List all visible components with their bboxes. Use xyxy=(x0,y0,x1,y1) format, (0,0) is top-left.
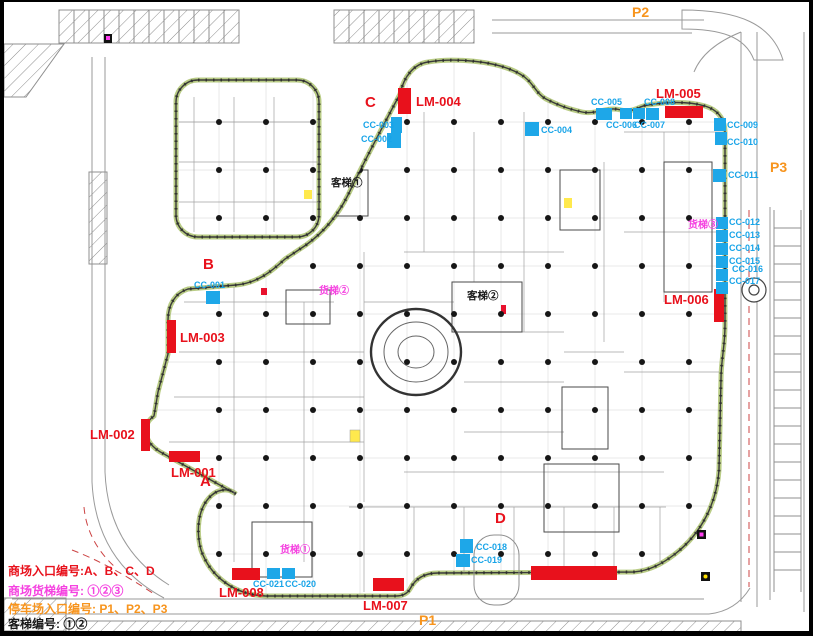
escalator-marker xyxy=(282,568,295,579)
escalator-marker xyxy=(267,568,280,579)
escalator-marker xyxy=(716,256,728,268)
mall-entrance-bar xyxy=(373,578,404,591)
entrance-letter: C xyxy=(365,95,376,110)
freight-elevator-label: 货梯② xyxy=(319,287,349,297)
escalator-label: CC-018 xyxy=(476,543,507,552)
escalator-label: CC-009 xyxy=(727,121,758,130)
escalator-marker xyxy=(714,118,726,131)
escalator-label: CC-017 xyxy=(729,277,760,286)
escalator-marker xyxy=(525,122,539,136)
annotation-overlay: LM-001LM-002LM-003LM-004LM-005LM-006LM-0… xyxy=(4,2,813,636)
mall-entrance-label: LM-003 xyxy=(180,331,225,344)
escalator-label: CC-021 xyxy=(253,580,284,589)
mall-entrance-label: LM-007 xyxy=(363,599,408,612)
escalator-label: CC-008 xyxy=(644,98,675,107)
escalator-label: CC-013 xyxy=(729,231,760,240)
escalator-marker xyxy=(716,282,728,294)
entrance-letter: A xyxy=(200,474,211,489)
mall-entrance-bar xyxy=(398,88,411,114)
parking-entrance-label: P2 xyxy=(632,5,649,19)
legend-mall-entrances: 商场入口编号:A、B、C、D xyxy=(8,565,155,577)
freight-elevator-label: 货梯③ xyxy=(688,221,718,231)
escalator-label: CC-011 xyxy=(728,171,759,180)
mall-entrance-bar xyxy=(665,106,703,118)
legend-passenger-elevators: 客梯编号: ①② xyxy=(8,618,87,630)
mall-entrance-bar xyxy=(531,566,617,580)
escalator-marker xyxy=(460,539,473,553)
escalator-marker xyxy=(713,169,726,182)
escalator-marker xyxy=(716,269,728,281)
escalator-marker xyxy=(206,291,220,304)
escalator-label: CC-006 xyxy=(606,121,637,130)
parking-entrance-label: P1 xyxy=(419,613,436,627)
legend-parking-entrances: 停车场入口编号: P1、P2、P3 xyxy=(8,603,167,615)
freight-elevator-label: 货梯① xyxy=(280,546,310,556)
escalator-marker xyxy=(456,554,470,567)
escalator-marker xyxy=(620,108,632,119)
escalator-marker xyxy=(716,230,728,242)
mall-entrance-label: LM-004 xyxy=(416,95,461,108)
escalator-label: CC-007 xyxy=(634,121,665,130)
escalator-label: CC-010 xyxy=(727,138,758,147)
mall-entrance-label: LM-006 xyxy=(664,293,709,306)
mall-entrance-label: LM-002 xyxy=(90,428,135,441)
escalator-label: CC-004 xyxy=(541,126,572,135)
escalator-label: CC-002 xyxy=(361,135,392,144)
entrance-letter: B xyxy=(203,257,214,272)
parking-entrance-label: P3 xyxy=(770,160,787,174)
legend-freight-elevators: 商场货梯编号: ①②③ xyxy=(8,585,123,597)
mall-entrance-bar xyxy=(141,419,150,451)
escalator-label: CC-001 xyxy=(194,281,225,290)
escalator-label: CC-020 xyxy=(285,580,316,589)
escalator-marker xyxy=(716,243,728,255)
floor-plan-sheet: LM-001LM-002LM-003LM-004LM-005LM-006LM-0… xyxy=(0,0,813,636)
escalator-label: CC-016 xyxy=(732,265,763,274)
passenger-elevator-label: 客梯② xyxy=(467,291,499,302)
escalator-label: CC-003 xyxy=(363,121,394,130)
escalator-marker xyxy=(715,132,727,145)
escalator-label: CC-014 xyxy=(729,244,760,253)
entrance-letter: D xyxy=(495,511,506,526)
escalator-marker xyxy=(596,108,612,120)
mall-entrance-bar xyxy=(169,451,200,462)
escalator-marker xyxy=(646,108,659,120)
passenger-elevator-label: 客梯① xyxy=(331,178,363,189)
escalator-marker xyxy=(633,108,645,119)
escalator-label: CC-019 xyxy=(471,556,502,565)
escalator-label: CC-005 xyxy=(591,98,622,107)
mall-entrance-bar xyxy=(167,320,176,353)
escalator-label: CC-012 xyxy=(729,218,760,227)
